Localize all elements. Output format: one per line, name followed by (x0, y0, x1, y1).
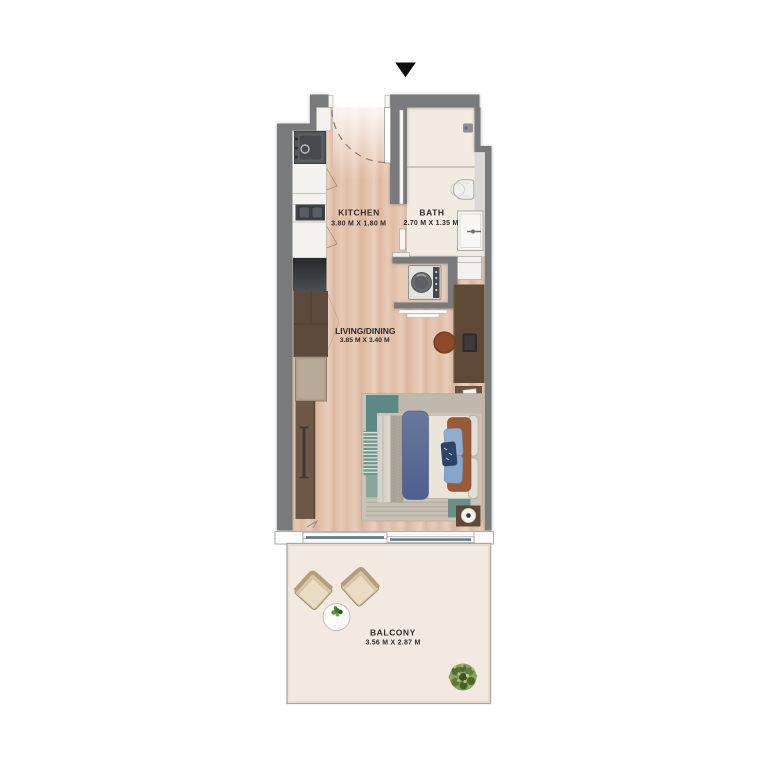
svg-text:LIVING/DINING: LIVING/DINING (335, 326, 396, 336)
svg-text:2.70 M X 1.35 M: 2.70 M X 1.35 M (403, 220, 458, 227)
svg-text:3.56 M X 2.87 M: 3.56 M X 2.87 M (365, 640, 420, 647)
svg-text:BATH: BATH (419, 208, 444, 218)
svg-text:3.80 M X 1.80 M: 3.80 M X 1.80 M (331, 220, 386, 227)
svg-text:3.85 M X 3.40 M: 3.85 M X 3.40 M (340, 337, 390, 344)
svg-text:BALCONY: BALCONY (370, 628, 416, 638)
svg-text:KITCHEN: KITCHEN (338, 208, 380, 218)
